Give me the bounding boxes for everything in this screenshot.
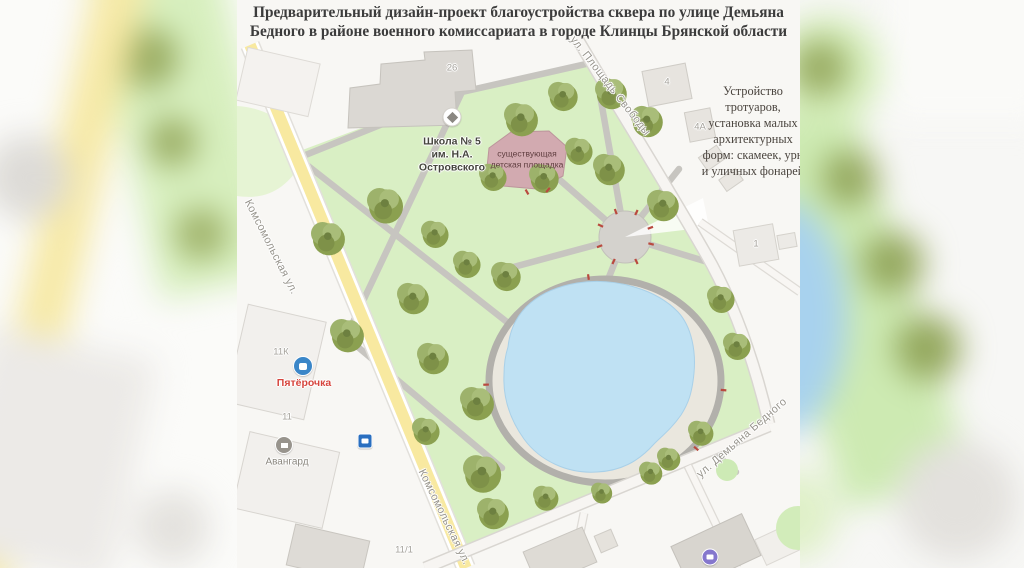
- building-number-11: 11: [282, 412, 292, 423]
- background-blur-left: [0, 0, 240, 568]
- building-number-11-1: 11/1: [395, 545, 413, 556]
- page-title-line2: Бедного в районе военного комиссариата в…: [240, 23, 797, 42]
- map-panel: Предварительный дизайн-проект благоустро…: [237, 0, 800, 568]
- bus-stop-icon: [358, 434, 373, 449]
- background-blur-right: [797, 0, 1024, 568]
- page-title-line1: Предварительный дизайн-проект благоустро…: [240, 4, 797, 23]
- blur-shapes-left: [0, 0, 240, 568]
- avangard-poi-icon: [275, 436, 293, 454]
- page-title: Предварительный дизайн-проект благоустро…: [240, 4, 797, 42]
- building-number-26: 26: [447, 63, 458, 74]
- poi-icon-purple: [702, 549, 719, 566]
- playground-label: существующая детская площадка: [488, 149, 566, 172]
- building-1-annex: [777, 233, 797, 250]
- bench-marker: [483, 383, 489, 385]
- annotation-note: Устройство тротуаров, установка малых ар…: [700, 84, 800, 180]
- building-number-4a: 4А: [694, 122, 706, 133]
- pyaterochka-poi-icon: [293, 356, 313, 376]
- school-poi-icon: [443, 108, 462, 127]
- pyaterochka-poi-label: Пятёрочка: [277, 377, 331, 389]
- building-number-4: 4: [664, 77, 669, 88]
- screenshot: Предварительный дизайн-проект благоустро…: [0, 0, 1024, 568]
- blur-shapes-right: [797, 0, 1024, 568]
- school-poi-label: Школа № 5 им. Н.А. Островского: [419, 135, 485, 174]
- building-number-1: 1: [753, 239, 758, 250]
- building-number-11k: 11К: [273, 347, 288, 358]
- avangard-poi-label: Авангард: [265, 457, 308, 468]
